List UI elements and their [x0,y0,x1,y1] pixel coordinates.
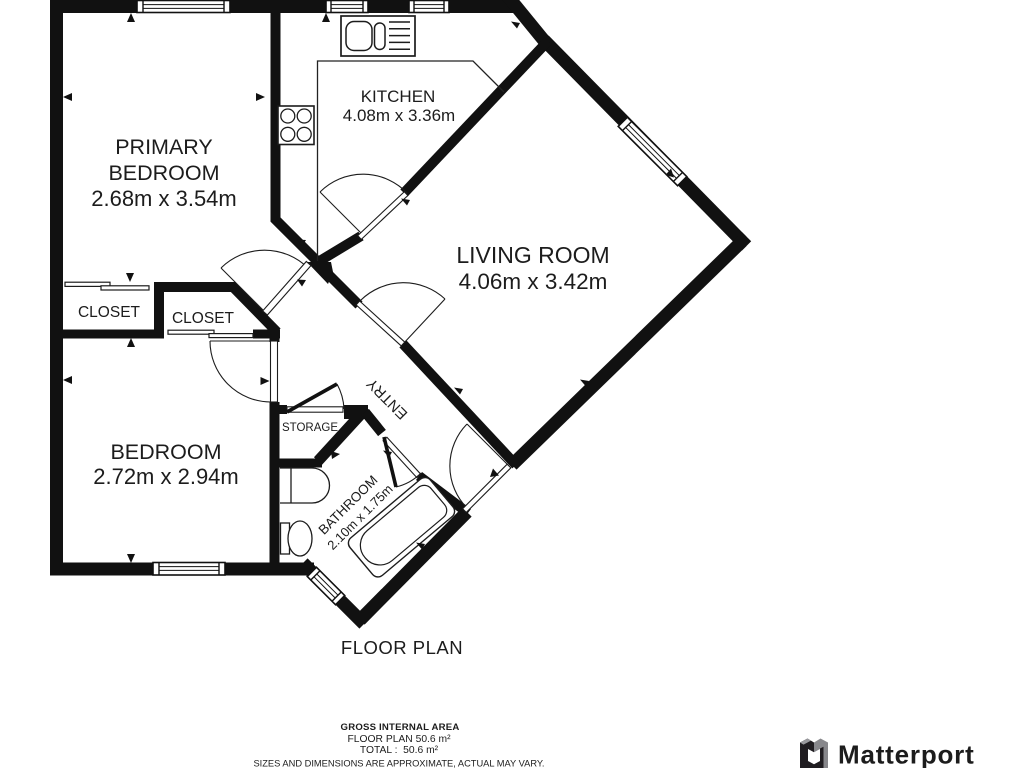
svg-text:Matterport: Matterport [838,740,975,768]
svg-text:PRIMARY: PRIMARY [115,135,213,159]
svg-text:BEDROOM: BEDROOM [108,161,219,185]
svg-text:2.68m x 3.54m: 2.68m x 3.54m [91,186,237,211]
svg-text:GROSS INTERNAL AREA: GROSS INTERNAL AREA [341,722,460,733]
svg-text:FLOOR PLAN: FLOOR PLAN [341,637,463,658]
svg-text:TOTAL : 50.6 m²: TOTAL : 50.6 m² [360,745,439,756]
svg-text:CLOSET: CLOSET [78,304,141,321]
svg-text:KITCHEN: KITCHEN [361,87,436,106]
svg-text:SIZES AND DIMENSIONS ARE APPRO: SIZES AND DIMENSIONS ARE APPROXIMATE, AC… [253,759,544,768]
svg-text:4.06m x 3.42m: 4.06m x 3.42m [459,269,608,294]
svg-text:4.08m x 3.36m: 4.08m x 3.36m [343,106,455,125]
svg-text:BEDROOM: BEDROOM [110,440,221,464]
svg-text:2.72m x 2.94m: 2.72m x 2.94m [93,464,239,489]
svg-text:LIVING ROOM: LIVING ROOM [456,242,609,268]
svg-text:FLOOR PLAN 50.6 m²: FLOOR PLAN 50.6 m² [348,734,452,745]
svg-text:STORAGE: STORAGE [282,422,338,434]
svg-text:CLOSET: CLOSET [172,310,235,327]
